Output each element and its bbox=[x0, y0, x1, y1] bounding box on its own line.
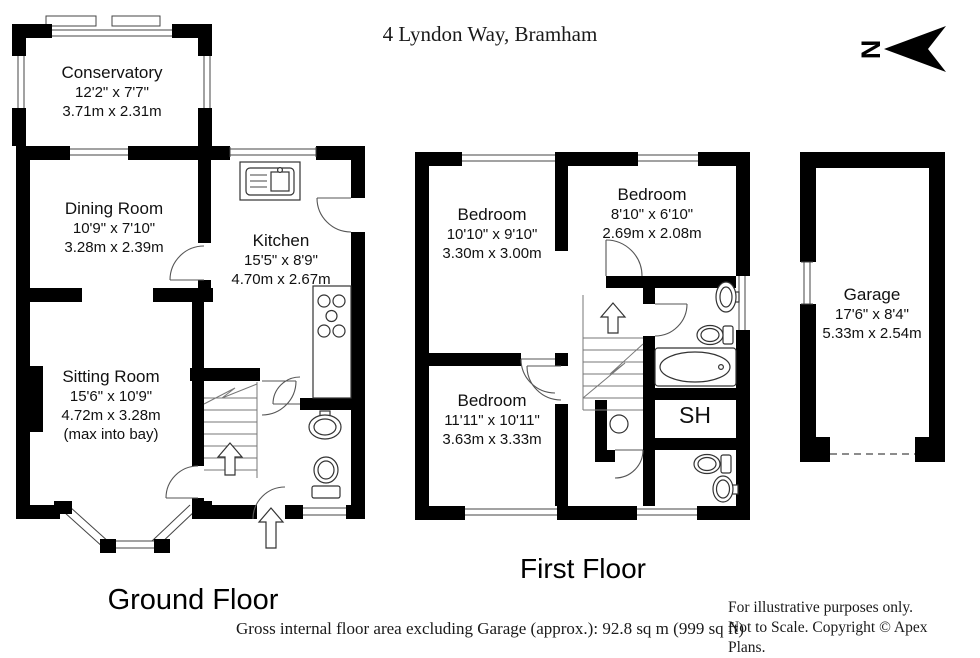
room-dims-m: 3.30m x 3.00m bbox=[412, 244, 572, 263]
bay-window bbox=[54, 501, 212, 553]
room-name: Sitting Room bbox=[31, 366, 191, 387]
room-label-sitting-room: Sitting Room 15'6" x 10'9" 4.72m x 3.28m… bbox=[31, 366, 191, 444]
room-name: Conservatory bbox=[32, 62, 192, 83]
north-arrow-icon: N bbox=[860, 26, 946, 72]
north-label: N bbox=[854, 39, 885, 59]
window-sill bbox=[112, 16, 160, 26]
room-label-shower: SH bbox=[665, 406, 725, 425]
room-dims-ft: 12'2" x 7'7" bbox=[32, 83, 192, 102]
room-name: Dining Room bbox=[34, 198, 194, 219]
room-name: Garage bbox=[792, 284, 952, 305]
room-dims-m: 4.72m x 3.28m bbox=[31, 406, 191, 425]
footer-disclaimer: For illustrative purposes only. Not to S… bbox=[728, 598, 968, 658]
room-dims-ft: 15'5" x 8'9" bbox=[211, 251, 351, 270]
room-dims-m: 4.70m x 2.67m bbox=[211, 270, 351, 289]
room-dims-ft: 11'11" x 10'11" bbox=[412, 411, 572, 430]
room-name: Bedroom bbox=[572, 184, 732, 205]
ground-floor-title: Ground Floor bbox=[93, 584, 293, 617]
sink-icon bbox=[713, 476, 738, 502]
north-arrow-glyph bbox=[884, 26, 946, 72]
room-label-bedroom-1: Bedroom 10'10" x 9'10" 3.30m x 3.00m bbox=[412, 204, 572, 263]
disclaimer-line-1: For illustrative purposes only. bbox=[728, 598, 968, 618]
room-label-bedroom-3: Bedroom 11'11" x 10'11" 3.63m x 3.33m bbox=[412, 390, 572, 449]
toilet-icon bbox=[694, 455, 731, 474]
toilet-icon bbox=[312, 457, 340, 498]
hob-icon bbox=[313, 286, 351, 398]
room-name: Bedroom bbox=[412, 204, 572, 225]
page-title: 4 Lyndon Way, Bramham bbox=[240, 22, 740, 47]
staircase bbox=[204, 382, 257, 478]
room-dims-ft: 10'10" x 9'10" bbox=[412, 225, 572, 244]
room-label-kitchen: Kitchen 15'5" x 8'9" 4.70m x 2.67m bbox=[211, 230, 351, 289]
room-dims-ft: 10'9" x 7'10" bbox=[34, 219, 194, 238]
room-label-conservatory: Conservatory 12'2" x 7'7" 3.71m x 2.31m bbox=[32, 62, 192, 121]
room-dims-m: 5.33m x 2.54m bbox=[792, 324, 952, 343]
room-name: Bedroom bbox=[412, 390, 572, 411]
up-arrow-icon bbox=[601, 303, 625, 333]
first-floor-title: First Floor bbox=[483, 553, 683, 585]
disclaimer-line-2: Not to Scale. Copyright © Apex Plans. bbox=[728, 618, 968, 658]
room-note: (max into bay) bbox=[31, 425, 191, 444]
toilet-icon bbox=[697, 326, 733, 345]
room-label-garage: Garage 17'6" x 8'4" 5.33m x 2.54m bbox=[792, 284, 952, 343]
room-dims-m: 3.71m x 2.31m bbox=[32, 102, 192, 121]
sink-icon bbox=[309, 411, 341, 439]
room-name: Kitchen bbox=[211, 230, 351, 251]
room-dims-ft: 8'10" x 6'10" bbox=[572, 205, 732, 224]
room-dims-ft: 17'6" x 8'4" bbox=[792, 305, 952, 324]
staircase bbox=[583, 295, 643, 410]
window-sill bbox=[46, 16, 96, 26]
kitchen-sink-icon bbox=[240, 162, 300, 200]
bathtub-icon bbox=[655, 348, 736, 386]
room-dims-ft: 15'6" x 10'9" bbox=[31, 387, 191, 406]
floorplan-page: { "title": "4 Lyndon Way, Bramham", "nor… bbox=[0, 0, 980, 652]
room-dims-m: 2.69m x 2.08m bbox=[572, 224, 732, 243]
room-label-dining-room: Dining Room 10'9" x 7'10" 3.28m x 2.39m bbox=[34, 198, 194, 257]
entrance-arrow-icon bbox=[259, 508, 283, 548]
shower-head-icon bbox=[610, 415, 628, 433]
room-label-bedroom-2: Bedroom 8'10" x 6'10" 2.69m x 2.08m bbox=[572, 184, 732, 243]
room-dims-m: 3.63m x 3.33m bbox=[412, 430, 572, 449]
room-dims-m: 3.28m x 2.39m bbox=[34, 238, 194, 257]
